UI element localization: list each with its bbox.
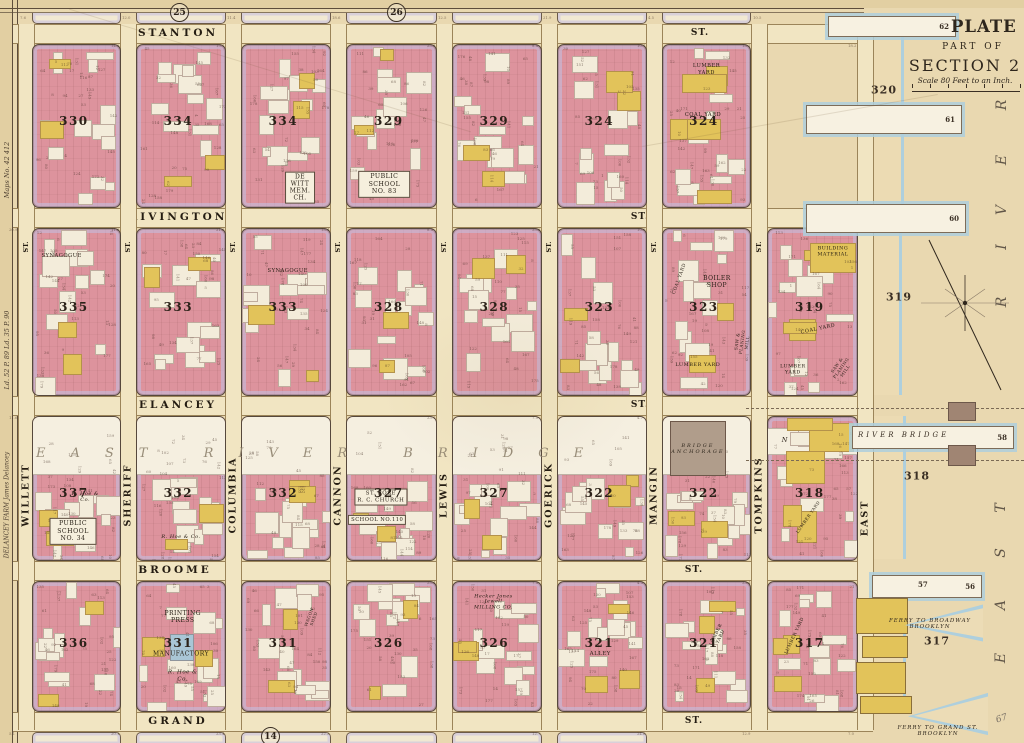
lot-number: 143 xyxy=(263,667,271,672)
lot-number: 50 xyxy=(619,187,624,192)
lot-number: 9 xyxy=(62,347,65,352)
lot-number: 100 xyxy=(706,589,714,594)
lot-number: 96 xyxy=(36,157,41,162)
lot-number: 141 xyxy=(488,51,496,56)
lot-number: 53 xyxy=(592,286,597,291)
map-block-336-23: 4111011361211481352577226319227495751796… xyxy=(32,581,121,712)
building-patch-yellow xyxy=(85,601,104,615)
lot-number: 63 xyxy=(91,592,96,597)
block-label: DE WITT MEM. CH. xyxy=(285,171,315,204)
lot-number: 164 xyxy=(317,68,325,73)
building-patch xyxy=(382,684,407,697)
lot-number: 97 xyxy=(466,490,471,495)
lot-number: 85 xyxy=(786,587,791,592)
map-block-317-30: 9116516814915581211779617469448323762617… xyxy=(767,581,858,712)
building-patch xyxy=(736,608,745,617)
lot-number: 107 xyxy=(166,461,174,466)
lot-number: 29 xyxy=(205,440,210,445)
lot-number: 150 xyxy=(471,584,476,592)
lot-number: 175 xyxy=(531,378,539,383)
lot-number: 111 xyxy=(500,252,508,257)
building-patch xyxy=(200,140,212,157)
lot-number: 73 xyxy=(809,467,814,472)
lot-number: 93 xyxy=(681,515,686,520)
block-number-336: 336 xyxy=(59,636,89,650)
lot-number: 86 xyxy=(404,81,409,86)
street-label-st-vertical: ST. xyxy=(334,242,342,253)
lot-number: 15 xyxy=(838,432,843,437)
border-tick-number: 12.5 xyxy=(438,15,446,20)
lot-number: 151 xyxy=(614,235,622,240)
lot-number: 138 xyxy=(429,660,434,668)
lot-number: 25 xyxy=(461,528,466,533)
lot-number: 166 xyxy=(839,463,847,468)
lot-number: 115 xyxy=(295,522,303,527)
lot-number: 167 xyxy=(214,88,219,96)
building-patch xyxy=(147,702,167,712)
lot-number: 140 xyxy=(61,512,69,517)
lot-number: 119 xyxy=(501,622,509,627)
building-patch xyxy=(788,259,803,276)
lot-number: 4 xyxy=(64,153,67,158)
lot-number: 92 xyxy=(322,51,327,56)
lot-number: 160 xyxy=(203,275,208,283)
lot-number: 148 xyxy=(52,703,60,708)
lot-number: 35 xyxy=(194,122,199,127)
lot-number: 102 xyxy=(162,684,167,692)
lot-number: 108 xyxy=(493,661,498,669)
lot-number: 147 xyxy=(396,619,401,627)
lot-number: 36 xyxy=(169,83,174,88)
block-number-329: 329 xyxy=(480,114,510,128)
block-number-326: 326 xyxy=(480,636,510,650)
lot-number: 19 xyxy=(84,702,89,707)
block-label: LUMBER YARD xyxy=(780,364,806,376)
lot-number: 140 xyxy=(619,667,627,672)
lot-number: 168 xyxy=(428,643,433,651)
lot-number: 79 xyxy=(702,529,707,534)
lot-number: 119 xyxy=(568,318,573,326)
lot-number: 64 xyxy=(184,244,189,249)
lot-number: 35 xyxy=(413,647,418,652)
pier-62: 62 xyxy=(828,16,956,37)
lot-number: 68 xyxy=(90,681,95,686)
lot-number: 36 xyxy=(44,350,49,355)
lot-number: 148 xyxy=(584,608,592,613)
lot-number: 147 xyxy=(690,162,695,170)
street-label-tompkins: TOMPKINS xyxy=(754,456,765,533)
lot-number: 22 xyxy=(622,90,627,95)
lot-number: 10 xyxy=(506,66,511,71)
east-river-bridge-span-label: EAST RIVER BRIDGE xyxy=(36,446,636,461)
building-patch xyxy=(506,287,517,301)
lot-number: 95 xyxy=(319,592,324,597)
map-block-328-10: 1026711819168136281621487116993871309117… xyxy=(346,228,437,396)
lot-number: 145 xyxy=(729,68,737,73)
lot-number: 92 xyxy=(51,642,56,647)
lot-number: 130 xyxy=(639,499,644,507)
lot-number: 145 xyxy=(195,60,203,65)
lot-number: 32 xyxy=(521,480,526,485)
lot-number: 70 xyxy=(141,650,146,655)
lot-number: 132 xyxy=(626,156,631,164)
lot-number: 62 xyxy=(670,169,675,174)
lot-number: 78 xyxy=(630,559,635,561)
block-number-332: 332 xyxy=(164,486,194,500)
lot-number: 106 xyxy=(210,641,218,646)
lot-number: 176 xyxy=(458,54,466,59)
lot-number: 134 xyxy=(308,259,316,264)
lot-number: 63 xyxy=(572,616,577,621)
building-patch-yellow xyxy=(165,539,188,550)
building-patch xyxy=(625,547,634,558)
lot-number: 74 xyxy=(109,691,114,696)
street-label-st-vertical: ST. xyxy=(22,242,30,253)
lot-number: 130 xyxy=(68,511,76,516)
lot-number: 175 xyxy=(415,180,420,188)
lot-number: 65 xyxy=(219,122,224,127)
building-patch xyxy=(781,528,791,542)
street-sheriff xyxy=(120,24,137,730)
lot-number: 177 xyxy=(103,353,111,358)
lot-number: 148 xyxy=(171,130,179,135)
lot-number: 95 xyxy=(35,331,40,336)
pier-number: 57 xyxy=(918,580,928,589)
building-patch xyxy=(714,230,734,252)
building-patch xyxy=(247,550,268,560)
lot-number: 130 xyxy=(245,627,253,632)
lot-number: 131 xyxy=(255,177,263,182)
lot-number: 95 xyxy=(823,536,828,541)
building-patch xyxy=(580,148,592,160)
building-patch xyxy=(522,116,534,125)
top-border-outer xyxy=(0,8,864,9)
lot-number: 155 xyxy=(463,115,471,120)
building-patch xyxy=(359,619,376,637)
building-patch xyxy=(826,314,854,322)
lot-number: 1 xyxy=(601,173,604,178)
map-block-323-12: 1078815817876138142581511191531374912136… xyxy=(557,228,647,396)
lot-number: 121 xyxy=(630,339,638,344)
lot-number: 14 xyxy=(493,686,498,691)
lot-number: 157 xyxy=(676,186,681,194)
lot-number: 136 xyxy=(321,541,326,549)
lot-number: 35 xyxy=(322,665,327,670)
lot-number: 47 xyxy=(264,262,269,267)
lot-number: 86 xyxy=(727,636,732,641)
building-patch xyxy=(581,257,596,279)
lot-number: 10 xyxy=(721,514,726,519)
lot-number: 144 xyxy=(529,525,537,530)
lot-number: 123 xyxy=(703,86,711,91)
lot-number: 135 xyxy=(632,86,640,91)
lot-number: 75 xyxy=(182,166,187,171)
lot-number: 68 xyxy=(470,286,475,291)
street-dimension: 5.1 xyxy=(9,731,15,736)
street-dimension: 7.0 xyxy=(848,731,854,736)
street-dimension: 7.5 xyxy=(532,580,538,585)
lot-number: 99 xyxy=(703,147,708,152)
river-bridge-label: RIVER BRIDGE xyxy=(858,431,949,439)
building-patch xyxy=(518,624,539,643)
lot-number: 142 xyxy=(678,146,686,151)
lot-number: 61 xyxy=(367,687,372,692)
lot-number: 32 xyxy=(519,266,524,271)
lot-number: 120 xyxy=(159,509,164,517)
lot-number: 165 xyxy=(429,616,437,621)
lot-number: 33 xyxy=(293,689,298,694)
lot-number: 64 xyxy=(40,68,45,73)
lot-number: 130 xyxy=(593,592,601,597)
lot-number: 138 xyxy=(613,384,621,389)
lot-number: 149 xyxy=(612,520,617,528)
building-patch xyxy=(507,481,531,502)
lot-number: 15 xyxy=(216,674,221,679)
block-number-321: 321 xyxy=(585,636,615,650)
street-dimension: 7.5 xyxy=(532,415,538,420)
building-patch xyxy=(202,523,223,535)
lot-number: 154 xyxy=(712,515,717,523)
block-number-318: 318 xyxy=(795,486,825,500)
building-patch xyxy=(278,369,291,386)
lot-number: 80 xyxy=(253,646,258,651)
map-block-331-24: 1343043516514910215316945554137068931387… xyxy=(136,581,226,712)
lot-number: 81 xyxy=(390,535,395,540)
block-label: SCHOOL NO.110 xyxy=(348,515,406,525)
building-patch-yellow xyxy=(786,451,826,484)
map-block-327-18: 1201491011141601441221051608210489116965… xyxy=(346,416,437,561)
building-patch-yellow xyxy=(199,504,224,523)
lot-number: 36 xyxy=(813,372,818,377)
lot-number: 165 xyxy=(564,646,572,651)
plate-number: PLATE 15. xyxy=(951,17,1024,36)
lot-number: 156 xyxy=(679,530,687,535)
building-patch xyxy=(466,353,482,372)
block-number-333: 333 xyxy=(164,300,194,314)
lot-number: 32 xyxy=(156,75,161,80)
lot-number: 127 xyxy=(142,484,147,492)
lot-number: 58 xyxy=(284,161,289,166)
lot-number: 112 xyxy=(151,559,156,561)
lot-number: 145 xyxy=(396,529,404,534)
lot-number: 137 xyxy=(568,289,573,297)
lot-number: 73 xyxy=(593,179,598,184)
lot-number: 64 xyxy=(105,589,110,594)
building-patch-yellow xyxy=(774,676,802,692)
building-patch xyxy=(61,230,86,246)
lot-number: 71 xyxy=(630,71,635,76)
lot-number: 62 xyxy=(672,350,677,355)
lot-number: 163 xyxy=(212,323,220,328)
river-word-letter: E xyxy=(994,155,1010,165)
lot-number: 155 xyxy=(690,354,698,359)
bridge-anchorage-label: BRIDGE ANCHORAGE xyxy=(671,443,724,455)
bridge-edge-dashed xyxy=(746,408,1024,409)
lot-number: 66 xyxy=(254,608,259,613)
lot-number: 106 xyxy=(400,101,408,106)
lot-number: 31 xyxy=(463,477,468,482)
building-patch xyxy=(348,349,371,368)
lot-number: 54 xyxy=(265,147,270,152)
lot-number: 92 xyxy=(678,352,683,357)
map-block-321-29: 1715517810515411573861651415288491115117… xyxy=(662,581,751,712)
lot-number: 97 xyxy=(776,351,781,356)
lot-number: 20 xyxy=(172,165,177,170)
lot-number: 122 xyxy=(469,346,477,351)
lot-number: 48 xyxy=(514,366,519,371)
street-dimension: 8.5 xyxy=(427,227,433,232)
lot-number: 8 xyxy=(529,259,534,262)
lot-number: 59 xyxy=(475,277,480,282)
lot-number: 91 xyxy=(404,377,409,382)
building-patch-yellow xyxy=(464,499,480,519)
lot-number: 130 xyxy=(711,179,716,187)
lot-number: 13 xyxy=(105,319,110,324)
lot-number: 178 xyxy=(250,101,258,106)
lot-number: 83 xyxy=(353,291,358,296)
building-patch xyxy=(707,543,718,559)
east-word-letter: E xyxy=(993,653,1009,663)
street-label-st: ST. xyxy=(691,28,709,38)
lot-number: 48 xyxy=(468,56,473,61)
lot-number: 179 xyxy=(39,381,44,389)
building-patch xyxy=(683,280,694,303)
building-patch xyxy=(481,550,490,558)
building-patch xyxy=(66,582,77,598)
lot-number: 69 xyxy=(580,171,585,176)
lot-number: 139 xyxy=(744,354,749,362)
lot-number: 163 xyxy=(702,168,710,173)
street-label-st: ST. xyxy=(685,716,703,726)
building-patch xyxy=(778,658,801,671)
lot-number: 145 xyxy=(219,247,226,252)
street-dimension: 25.8 xyxy=(427,43,435,48)
lot-number: 86 xyxy=(210,270,215,275)
lot-number: 5 xyxy=(594,73,599,76)
block-label: ALLEY xyxy=(590,651,611,657)
building-patch xyxy=(407,481,428,501)
lot-number: 157 xyxy=(515,687,523,692)
lot-number: 114 xyxy=(490,175,495,183)
building-patch xyxy=(675,321,688,341)
lot-number: 21 xyxy=(849,584,854,589)
map-block-332-17: 2848170125116143155157685811267135100791… xyxy=(241,416,331,561)
lot-number: 74 xyxy=(299,298,304,303)
lot-number: 88 xyxy=(710,652,715,657)
lot-number: 167 xyxy=(629,655,637,660)
atlas-map-sheet: STANTONST.RIVINGTONST.DELANCEYST.BROOMES… xyxy=(0,0,1024,743)
block-number-322: 322 xyxy=(689,486,719,500)
lot-number: 131 xyxy=(468,554,473,561)
lot-number: 34 xyxy=(304,326,309,331)
lot-number: 96 xyxy=(372,363,377,368)
lot-number: 143 xyxy=(266,439,274,444)
lot-number: 45 xyxy=(623,624,628,629)
street-dimension: 24.6 xyxy=(637,731,645,736)
street-label-east: EAST xyxy=(860,500,871,537)
lot-number: 145 xyxy=(377,586,382,594)
building-patch xyxy=(78,193,93,205)
lot-number: 122 xyxy=(851,491,858,496)
circle-25-number: 25 xyxy=(173,8,186,18)
shoreline-strip xyxy=(873,228,902,395)
compass-rose-icon xyxy=(915,230,1015,400)
block-number-334: 334 xyxy=(269,114,299,128)
lot-number: 137 xyxy=(56,594,61,602)
lot-number: 131 xyxy=(74,58,79,66)
lot-number: 125 xyxy=(569,660,574,668)
building-patch xyxy=(377,336,396,344)
lot-number: 90 xyxy=(827,291,832,296)
lot-number: 120 xyxy=(567,533,575,538)
lot-number: 5 xyxy=(691,180,694,185)
lot-number: 21 xyxy=(101,661,106,666)
partial-block-bottom xyxy=(557,732,647,743)
building-patch-yellow xyxy=(617,91,641,111)
lot-number: 24 xyxy=(256,357,261,362)
lot-number: 134 xyxy=(169,340,177,345)
street-cannon xyxy=(330,24,347,730)
lot-number: 55 xyxy=(190,686,195,691)
lot-number: 20 xyxy=(367,645,372,650)
water-lot-number-320: 320 xyxy=(871,84,897,97)
lot-number: 46 xyxy=(364,114,369,119)
lot-number: 98 xyxy=(322,659,327,664)
lot-number: 15 xyxy=(518,307,523,312)
scale-note: Scale 80 Feet to an Inch. xyxy=(905,76,1024,85)
lot-number: 178 xyxy=(322,105,330,110)
lot-number: 178 xyxy=(604,525,612,530)
lot-number: 56 xyxy=(277,363,282,368)
lot-number: 20 xyxy=(141,684,146,689)
lot-number: 126 xyxy=(636,550,644,555)
street-dimension: 25.4 xyxy=(427,580,435,585)
lot-number: 88 xyxy=(634,325,639,330)
street-label-rivington: RIVINGTON xyxy=(129,211,228,223)
lot-number: 153 xyxy=(202,690,207,698)
block-number-328: 328 xyxy=(374,300,404,314)
lot-number: 108 xyxy=(701,328,709,333)
street-dimension: 20.1 xyxy=(111,731,119,736)
lot-number: 38 xyxy=(299,67,304,72)
lot-number: 114 xyxy=(405,546,413,551)
building-patch xyxy=(187,94,204,104)
lot-number: 12 xyxy=(670,59,675,64)
block-label: LUMBER YARD xyxy=(675,362,720,368)
lot-number: 6 xyxy=(682,234,687,237)
lot-number: 31 xyxy=(481,588,486,593)
lot-number: 82 xyxy=(410,468,415,473)
lot-number: 134 xyxy=(66,477,74,482)
lot-number: 46 xyxy=(252,588,257,593)
lot-number: 161 xyxy=(503,339,511,344)
lot-number: 56 xyxy=(412,500,417,505)
lot-number: 82 xyxy=(111,527,116,532)
bridge-tower-base xyxy=(948,402,976,421)
lot-number: 7 xyxy=(574,162,579,165)
lot-number: 2 xyxy=(46,155,49,160)
street-label-willett: WILLETT xyxy=(21,463,32,527)
street-dimension: 12.9 xyxy=(742,731,750,736)
building-patch xyxy=(675,169,692,185)
lot-number: 42 xyxy=(112,469,117,474)
street-lewis xyxy=(436,24,453,730)
lot-number: 62 xyxy=(166,181,171,186)
lot-number: 45 xyxy=(296,468,301,473)
block-label: SAW & PLANING MILL xyxy=(828,354,854,383)
street-tompkins xyxy=(751,24,768,730)
block-number-323: 323 xyxy=(585,300,615,314)
